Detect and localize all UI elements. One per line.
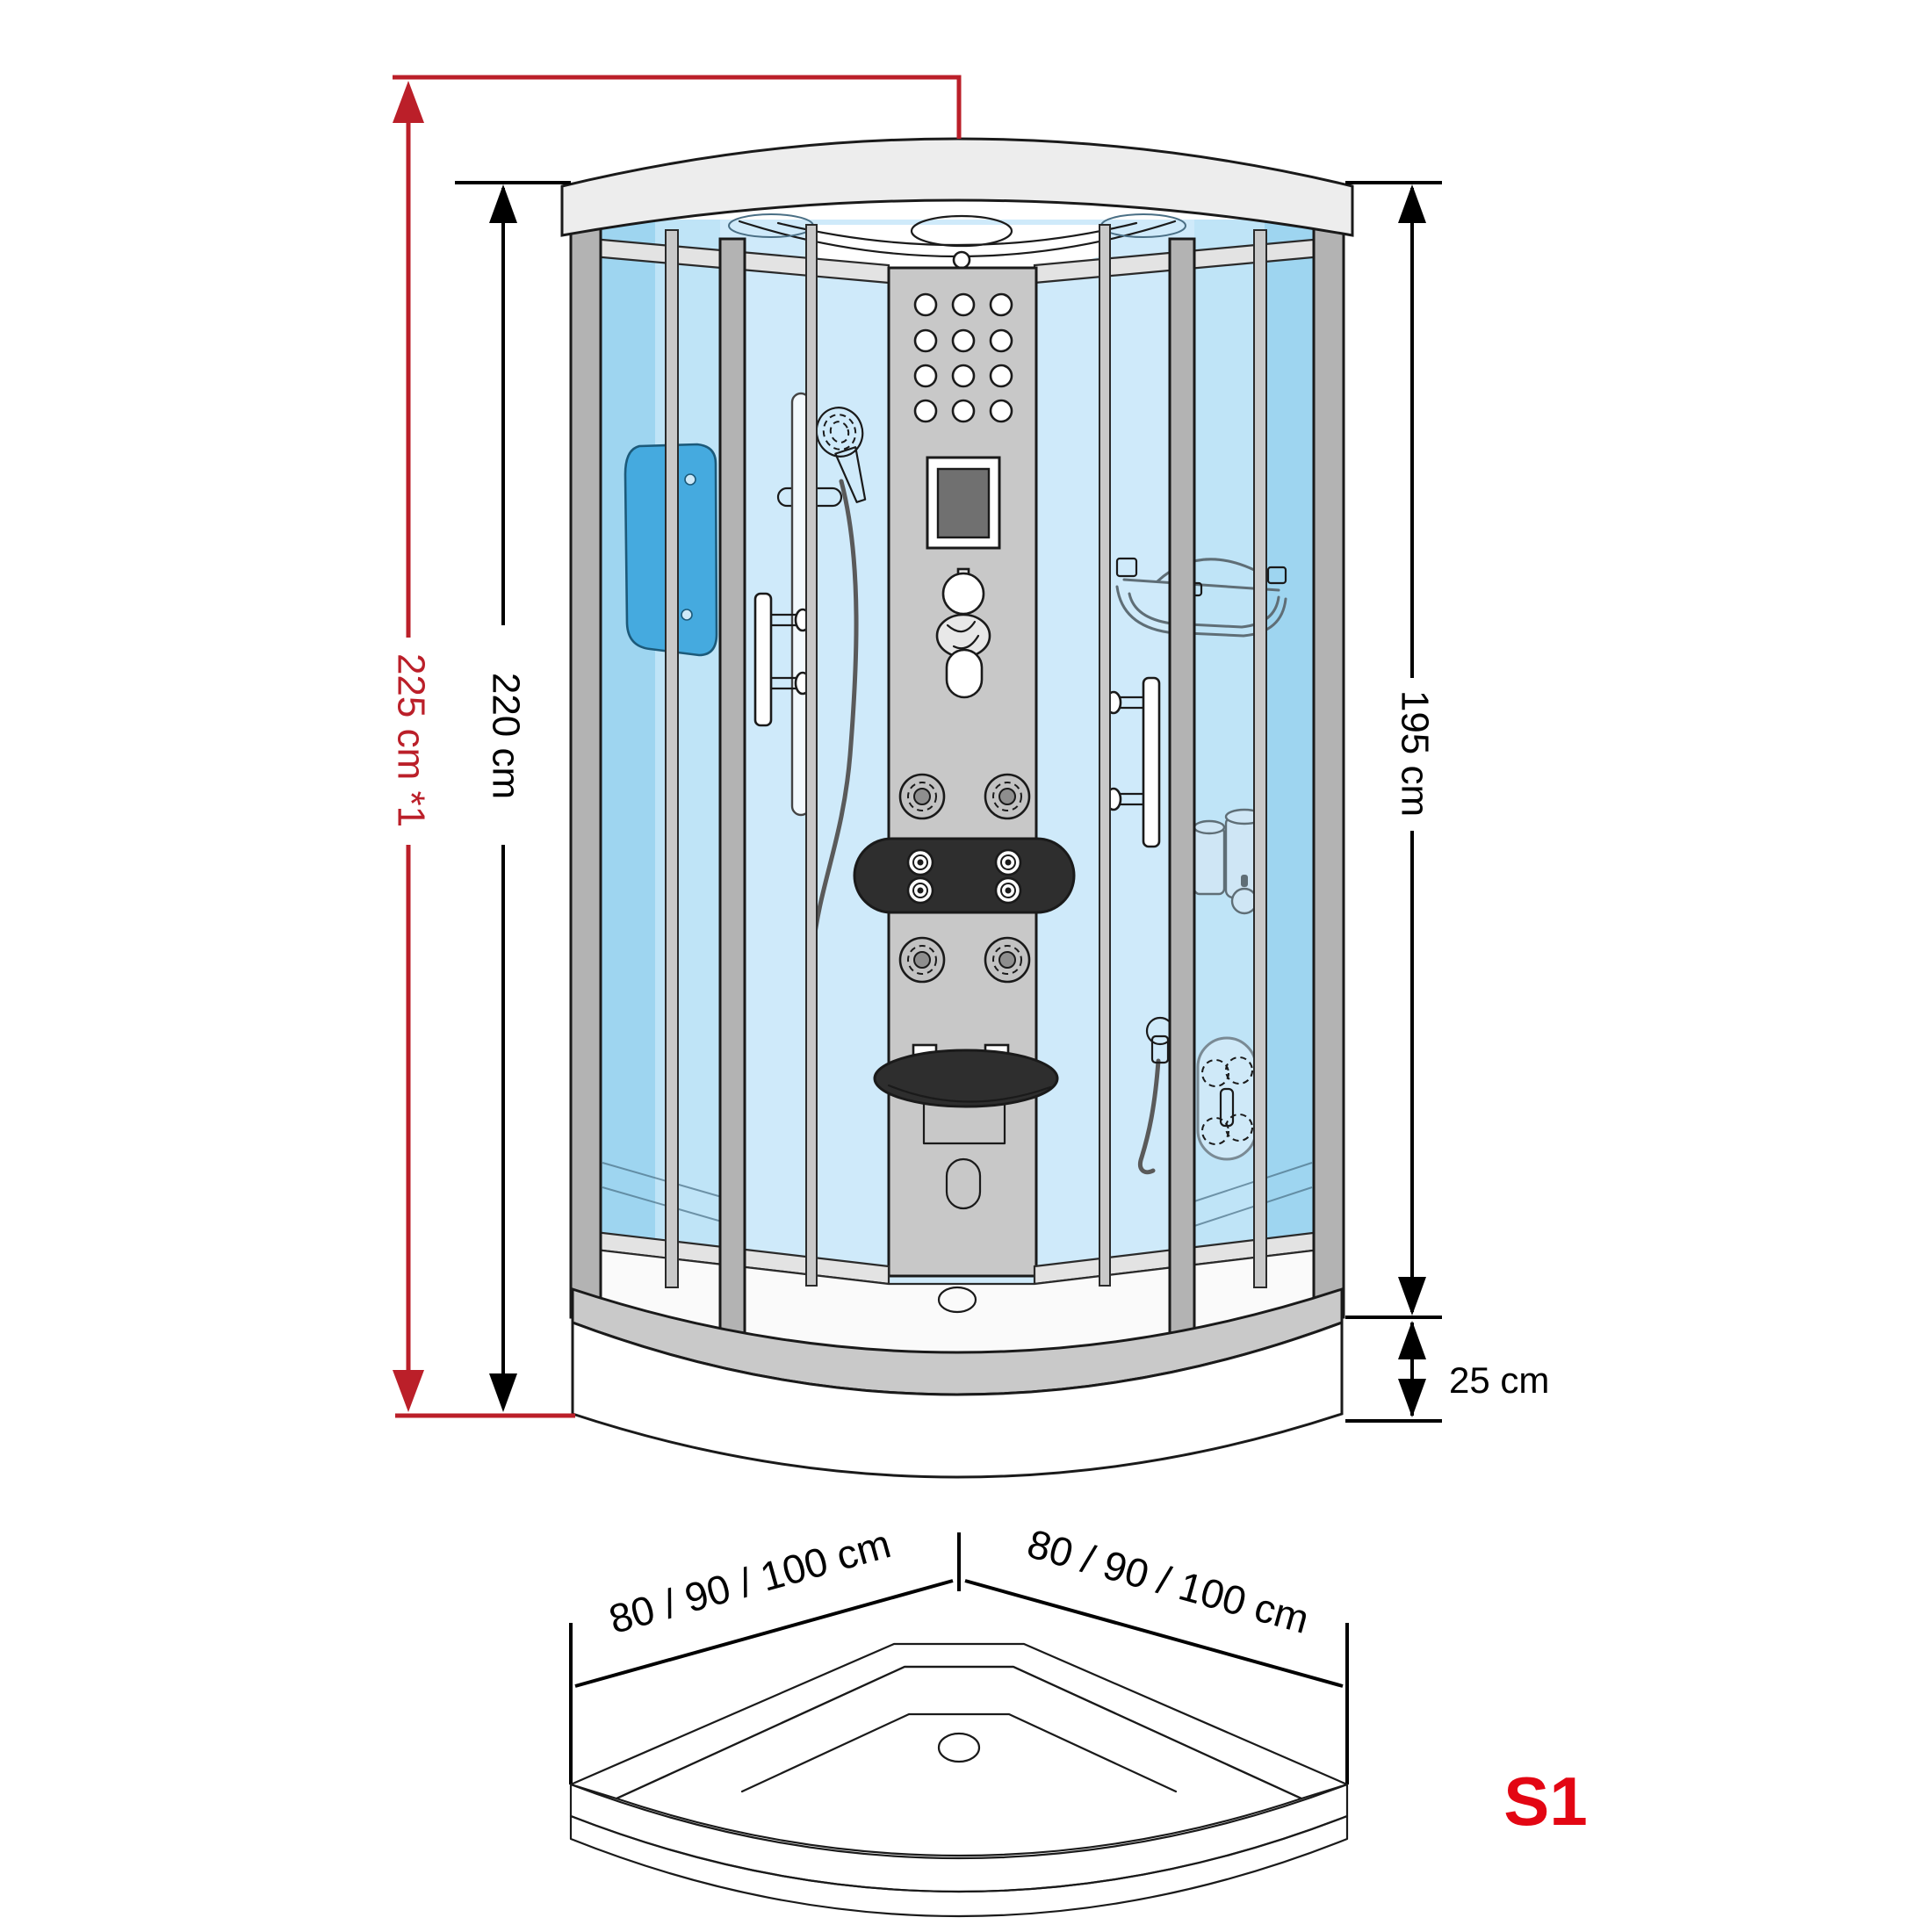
- model-badge: S1: [1503, 1763, 1587, 1840]
- panel-screw-icon: [685, 474, 696, 485]
- door-edge-frame: [806, 225, 817, 1286]
- display-screen: [938, 469, 989, 537]
- shower-cabin-dimension-diagram: 225 cm *1 220 cm 195 cm 25 cm: [0, 0, 1932, 1932]
- mixer-lever: [947, 650, 982, 697]
- headrest: [854, 839, 1074, 912]
- tray-top-view: 80 / 90 / 100 cm 80 / 90 / 100 cm: [571, 1520, 1347, 1916]
- drain-icon: [939, 1734, 979, 1762]
- side-jet-panel: [1198, 1038, 1256, 1159]
- label-inner-height: 195 cm: [1393, 690, 1436, 817]
- label-tray-height: 25 cm: [1449, 1359, 1549, 1401]
- tray-skirt-band: [571, 1816, 1347, 1916]
- door-edge-frame: [1099, 225, 1110, 1286]
- dim-tray-height: 25 cm: [1345, 1321, 1549, 1421]
- outer-post-left: [571, 184, 601, 1317]
- cabin-front-view: [562, 139, 1352, 1477]
- mid-post-right: [1170, 239, 1194, 1340]
- panel-screw-icon: [681, 609, 692, 620]
- dim-cabin-height: 220 cm: [455, 183, 571, 1412]
- seat-top: [875, 1050, 1057, 1107]
- glass-divider: [666, 230, 678, 1287]
- grab-bar: [1143, 678, 1159, 847]
- grab-bar: [755, 594, 771, 725]
- tray-rim-band: [571, 1784, 1347, 1892]
- label-total-height: 225 cm *1: [389, 653, 432, 827]
- label-base-width-right: 80 / 90 / 100 cm: [1022, 1520, 1314, 1642]
- dispenser-slot: [1241, 875, 1248, 887]
- glass-divider: [1254, 230, 1266, 1287]
- headrest-pad: [854, 839, 1074, 912]
- outer-post-right: [1314, 184, 1344, 1317]
- steam-nozzle-icon: [954, 252, 970, 268]
- dim-inner-height: 195 cm: [1345, 183, 1442, 1317]
- mid-post-left: [720, 239, 745, 1340]
- glass-left-deep: [601, 220, 655, 1295]
- dispenser-pump-icon: [1232, 889, 1257, 913]
- control-knob: [943, 573, 984, 614]
- label-cabin-height: 220 cm: [484, 673, 527, 799]
- tray-floor-step: [742, 1714, 1176, 1791]
- label-base-width-left: 80 / 90 / 100 cm: [604, 1520, 896, 1642]
